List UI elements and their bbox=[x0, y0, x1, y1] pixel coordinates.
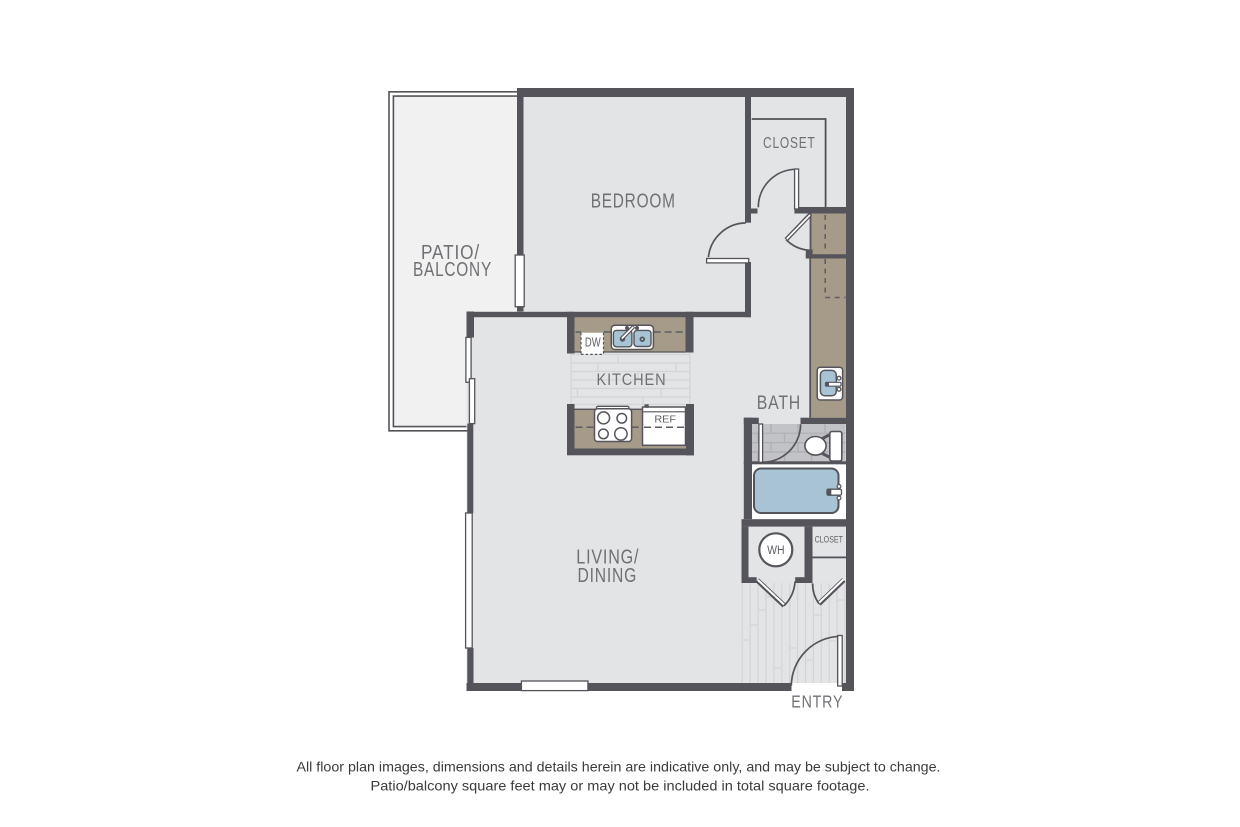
svg-text:ENTRY: ENTRY bbox=[791, 692, 843, 712]
svg-text:BEDROOM: BEDROOM bbox=[591, 191, 676, 213]
svg-text:Patio/balcony square feet may: Patio/balcony square feet may or may not… bbox=[371, 778, 870, 794]
svg-text:All floor plan images, dimensi: All floor plan images, dimensions and de… bbox=[297, 759, 941, 775]
svg-text:DINING: DINING bbox=[578, 565, 638, 587]
svg-text:BATH: BATH bbox=[757, 393, 801, 414]
svg-text:KITCHEN: KITCHEN bbox=[597, 371, 667, 389]
svg-text:CLOSET: CLOSET bbox=[815, 535, 844, 545]
svg-text:BALCONY: BALCONY bbox=[413, 259, 492, 281]
svg-text:WH: WH bbox=[767, 545, 785, 557]
svg-text:REF: REF bbox=[654, 414, 676, 425]
svg-text:DW: DW bbox=[585, 335, 601, 349]
svg-text:CLOSET: CLOSET bbox=[763, 135, 816, 152]
